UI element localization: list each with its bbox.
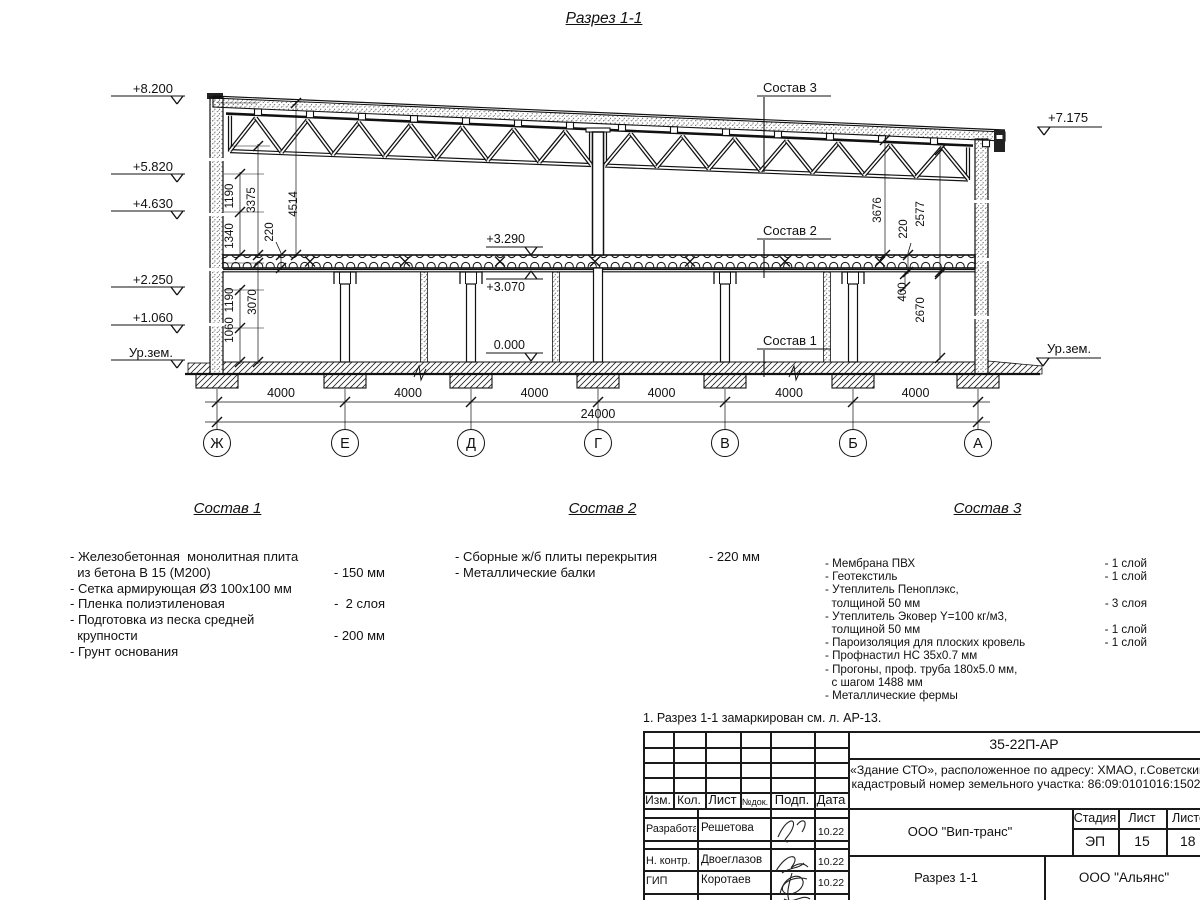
svg-text:+3.290: +3.290: [486, 232, 525, 246]
svg-text:+2.250: +2.250: [133, 272, 173, 287]
col-header-izm: Изм.: [643, 793, 673, 807]
svg-text:4000: 4000: [648, 386, 676, 400]
stage-value: ЭП: [1072, 833, 1118, 849]
svg-text:Б: Б: [848, 436, 858, 452]
composition-line: - Подготовка из песка средней: [70, 612, 385, 627]
svg-text:4514: 4514: [288, 191, 300, 217]
composition-line: с шагом 1488 мм: [825, 676, 1147, 689]
svg-text:Ж: Ж: [210, 436, 224, 452]
svg-text:Е: Е: [340, 436, 350, 452]
composition-line: - Металлические балки: [455, 565, 760, 580]
svg-text:4000: 4000: [521, 386, 549, 400]
col-header-podp: Подп.: [770, 792, 814, 807]
row-date: 10.22: [814, 856, 848, 868]
composition-callout: Состав 3: [763, 80, 817, 95]
composition-line: - Прогоны, проф. труба 180х5.0 мм,: [825, 663, 1147, 676]
composition-line: - Мембрана ПВХ- 1 слой: [825, 557, 1147, 570]
svg-text:2577: 2577: [915, 201, 927, 227]
section-drawing: 40004000400040004000400024000ЖЕДГВБА1190…: [0, 0, 1200, 480]
svg-text:+1.060: +1.060: [133, 310, 173, 325]
composition-line: толщиной 50 мм- 3 слоя: [825, 597, 1147, 610]
drawing-sheet: Разрез 1-1: [0, 0, 1200, 900]
row-name: Решетова: [701, 822, 769, 834]
svg-text:3070: 3070: [247, 289, 259, 315]
composition-line: - Геотекстиль- 1 слой: [825, 570, 1147, 583]
svg-text:2670: 2670: [915, 297, 927, 323]
svg-text:Д: Д: [466, 436, 476, 452]
composition-line: - Железобетонная монолитная плита: [70, 549, 385, 564]
svg-text:4000: 4000: [902, 386, 930, 400]
svg-text:Ур.зем.: Ур.зем.: [1047, 341, 1091, 356]
svg-text:1060: 1060: [224, 317, 236, 343]
doc-number: 35-22П-АР: [848, 736, 1200, 752]
right-wall: [974, 139, 989, 374]
svg-text:24000: 24000: [581, 407, 616, 421]
svg-text:220: 220: [898, 219, 910, 238]
composition-line: - Утеплитель Пеноплэкс,: [825, 583, 1147, 596]
row-role: Разработал: [646, 823, 696, 835]
row-role: ГИП: [646, 875, 696, 887]
composition-line: толщиной 50 мм- 1 слой: [825, 623, 1147, 636]
svg-text:0.000: 0.000: [494, 338, 525, 352]
svg-text:1190: 1190: [224, 184, 236, 209]
sheet-number: 15: [1118, 833, 1166, 849]
ground: [185, 361, 1042, 374]
svg-text:400: 400: [897, 282, 909, 301]
svg-text:1190: 1190: [224, 288, 236, 313]
composition-callout: Состав 1: [763, 333, 817, 348]
composition-line: из бетона В 15 (М200)- 150 мм: [70, 565, 385, 580]
roof: [213, 96, 1005, 152]
svg-text:4000: 4000: [775, 386, 803, 400]
signatures: [772, 815, 814, 900]
org-name-2: ООО "Альянс": [1046, 870, 1200, 885]
composition-callout: Состав 2: [763, 223, 817, 238]
svg-text:+7.175: +7.175: [1048, 110, 1088, 125]
composition-line: - Пленка полиэтиленовая- 2 слоя: [70, 596, 385, 611]
col-header-ndok: №док.: [740, 797, 770, 807]
composition-line: - Профнастил НС 35х0.7 мм: [825, 649, 1147, 662]
composition-header: Состав 3: [830, 500, 1145, 517]
svg-text:220: 220: [264, 222, 276, 241]
composition-header: Состав 1: [70, 500, 385, 517]
svg-text:3375: 3375: [246, 187, 258, 213]
svg-text:+3.070: +3.070: [486, 280, 525, 294]
svg-text:Г: Г: [594, 436, 602, 452]
org-name-1: ООО "Вип-транс": [848, 824, 1072, 839]
row-date: 10.22: [814, 877, 848, 889]
svg-text:+5.820: +5.820: [133, 159, 173, 174]
svg-text:В: В: [720, 436, 730, 452]
sheet-note: 1. Разрез 1-1 замаркирован см. л. АР-13.: [643, 711, 881, 725]
composition-line: - Пароизоляция для плоских кровель- 1 сл…: [825, 636, 1147, 649]
svg-text:4000: 4000: [394, 386, 422, 400]
composition-line: - Металлические фермы: [825, 689, 1147, 702]
sheets-total: 18: [1180, 833, 1200, 849]
svg-text:+4.630: +4.630: [133, 196, 173, 211]
composition-line: - Утеплитель Эковер Y=100 кг/м3,: [825, 610, 1147, 623]
left-wall: [207, 93, 224, 374]
col-header-data: Дата: [814, 792, 848, 807]
sheets-label: Листов: [1172, 811, 1200, 825]
row-date: 10.22: [814, 826, 848, 838]
object-description-line1: «Здание СТО», расположенное по адресу: Х…: [850, 763, 1200, 777]
row-name: Двоеглазов: [701, 854, 769, 866]
svg-text:3676: 3676: [872, 197, 884, 223]
composition-line: - Сборные ж/б плиты перекрытия- 220 мм: [455, 549, 760, 564]
svg-text:+8.200: +8.200: [133, 81, 173, 96]
svg-text:А: А: [973, 436, 983, 452]
composition-line: крупности- 200 мм: [70, 628, 385, 643]
svg-text:Ур.зем.: Ур.зем.: [129, 345, 173, 360]
sheet-label: Лист: [1118, 811, 1166, 825]
col-header-kol: Кол.: [673, 793, 705, 807]
composition-line: - Сетка армирующая Ø3 100х100 мм: [70, 581, 385, 596]
svg-text:4000: 4000: [267, 386, 295, 400]
svg-text:1340: 1340: [224, 223, 236, 249]
row-role: Н. контр.: [646, 855, 696, 867]
object-description-line2: кадастровый номер земельного участка: 86…: [850, 777, 1200, 791]
col-header-list: Лист: [705, 792, 740, 807]
stage-label: Стадия: [1072, 811, 1118, 825]
row-name: Коротаев: [701, 874, 769, 886]
composition-header: Состав 2: [445, 500, 760, 517]
composition-line: - Грунт основания: [70, 644, 385, 659]
sheet-title: Разрез 1-1: [848, 870, 1044, 885]
